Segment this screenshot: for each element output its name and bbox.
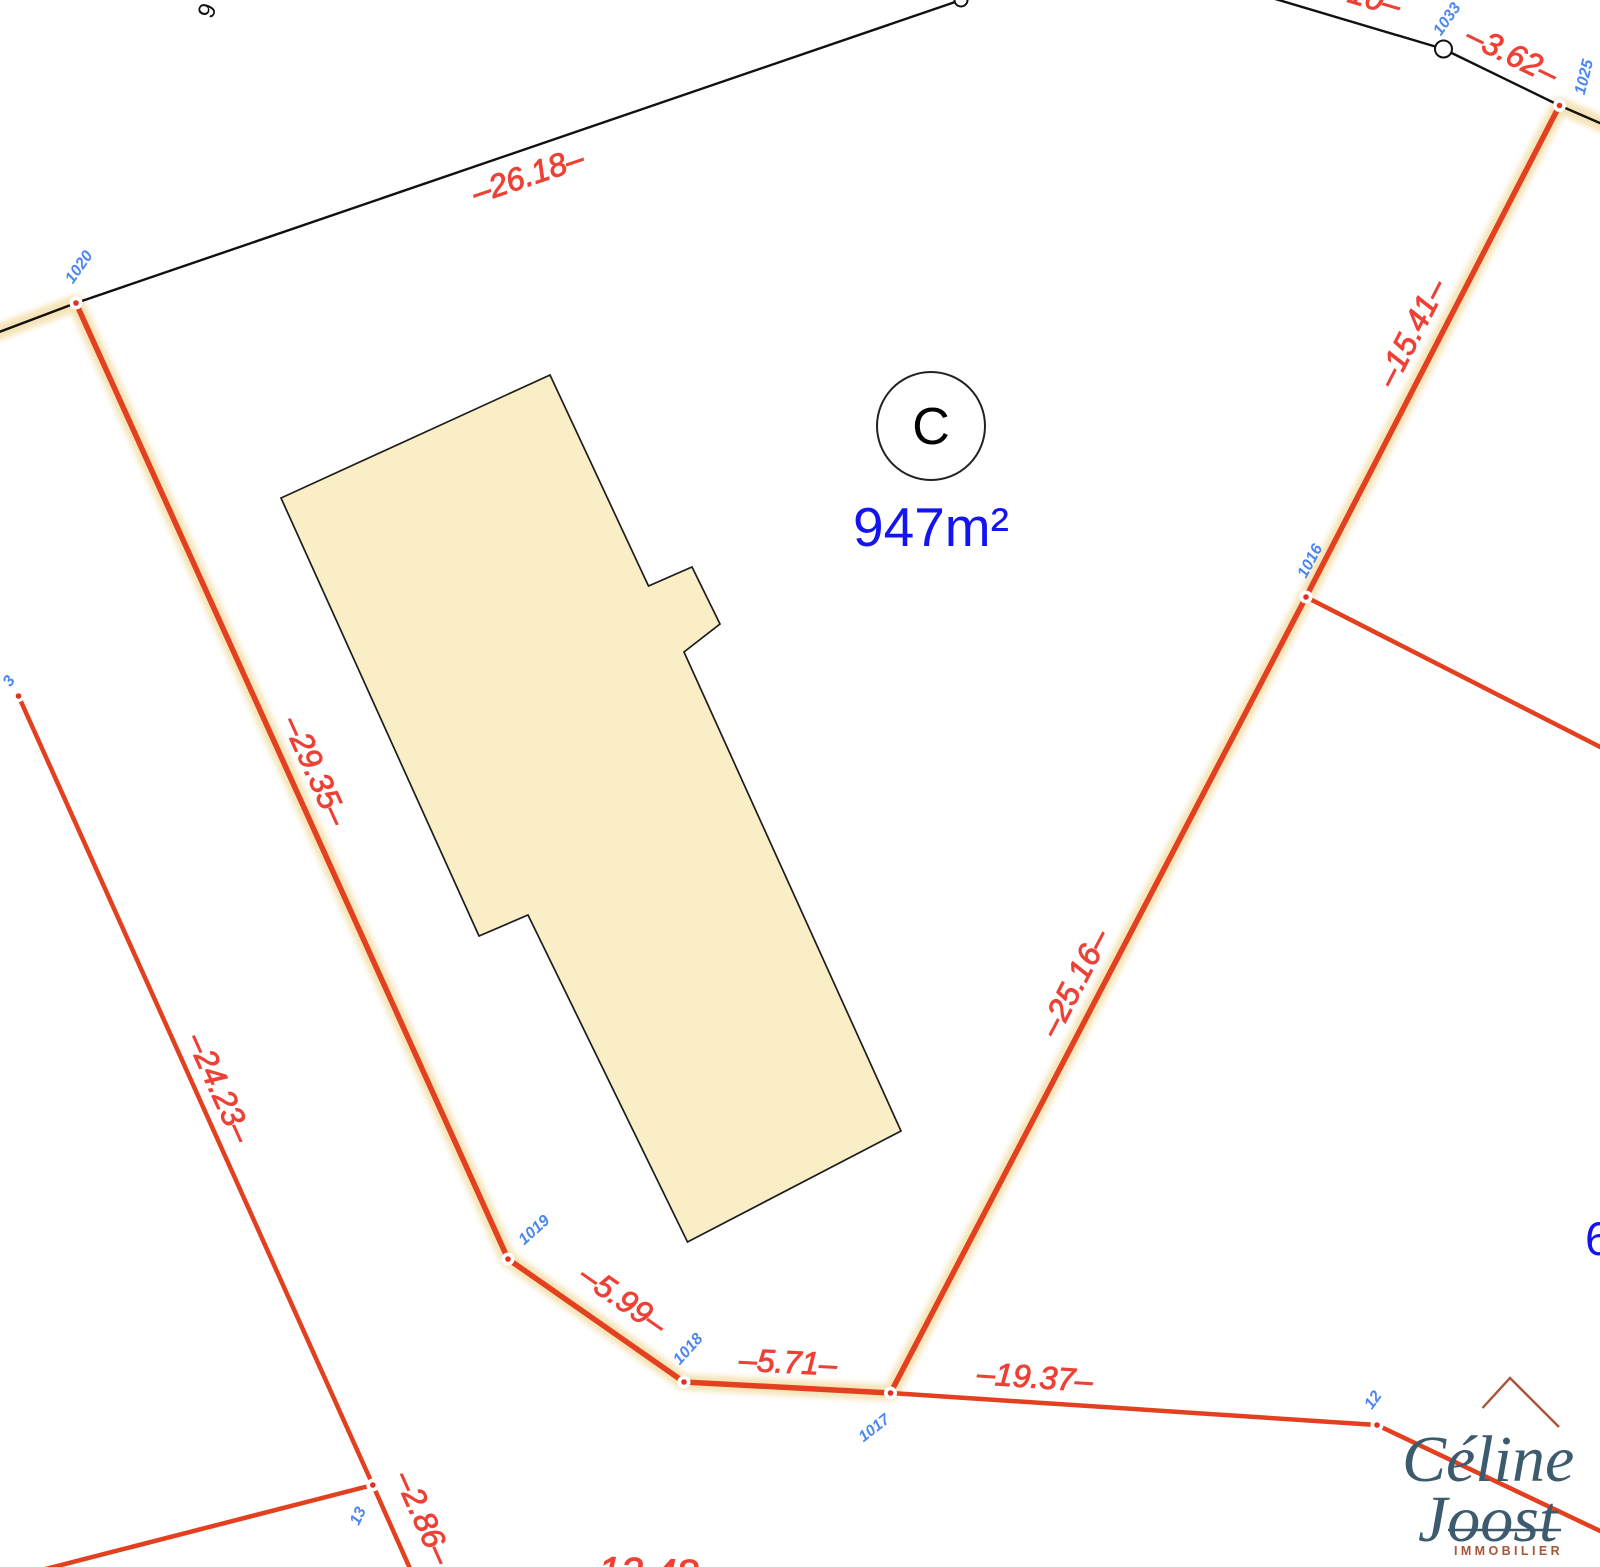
svg-text:C: C [912, 398, 950, 456]
svg-text:–5.71–: –5.71– [737, 1341, 838, 1382]
svg-text:6: 6 [1585, 1212, 1600, 1265]
svg-text:947m²: 947m² [853, 496, 1009, 558]
svg-text:IMMOBILIER: IMMOBILIER [1454, 1544, 1563, 1558]
